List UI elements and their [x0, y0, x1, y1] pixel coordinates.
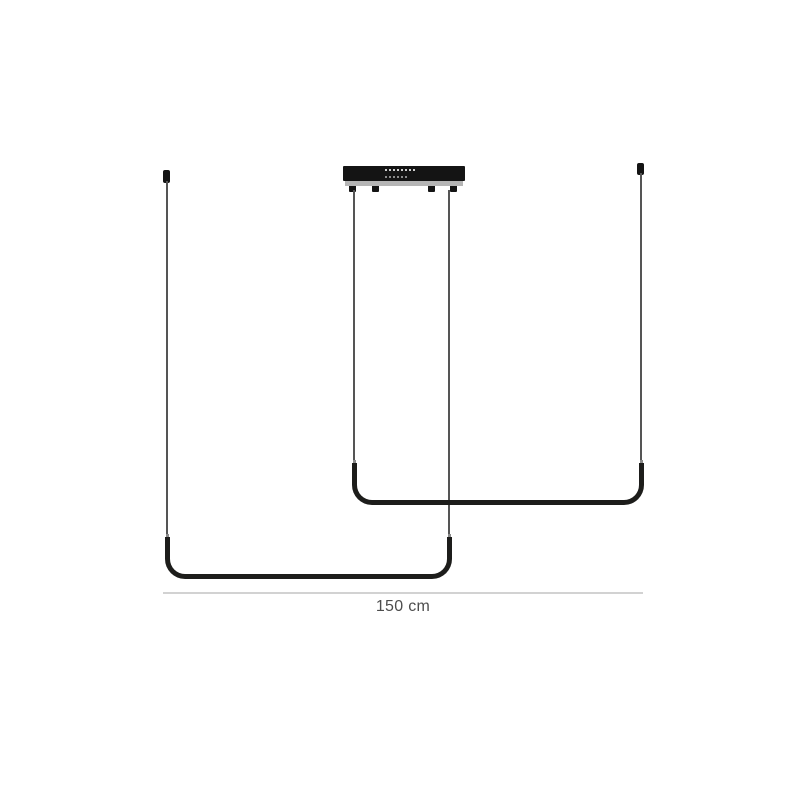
dimension-line: [163, 592, 643, 594]
bar-connector-cap: [353, 460, 356, 463]
dimension-label: 150 cm: [163, 598, 643, 616]
suspension-wire-outer-left: [166, 181, 168, 539]
suspension-wire-outer-right: [640, 173, 642, 464]
canopy-dot-row-top: [385, 169, 425, 171]
canopy-mounting-strip: [345, 181, 463, 186]
bar-connector-cap: [448, 534, 451, 537]
canopy-marking-dots-icon: [385, 169, 425, 178]
suspension-wire-canopy-left: [353, 190, 355, 464]
light-bar-upper: [352, 463, 644, 505]
canopy-mounting-tab: [450, 186, 457, 192]
bar-connector-cap: [640, 460, 643, 463]
light-bar-lower: [165, 537, 452, 579]
canopy-mounting-tab: [372, 186, 379, 192]
ceiling-canopy: [343, 166, 465, 181]
product-image-lamp: 150 cm: [0, 0, 800, 800]
canopy-dot-row-bottom: [385, 176, 425, 178]
bar-connector-cap: [166, 534, 169, 537]
canopy-mounting-tab: [428, 186, 435, 192]
